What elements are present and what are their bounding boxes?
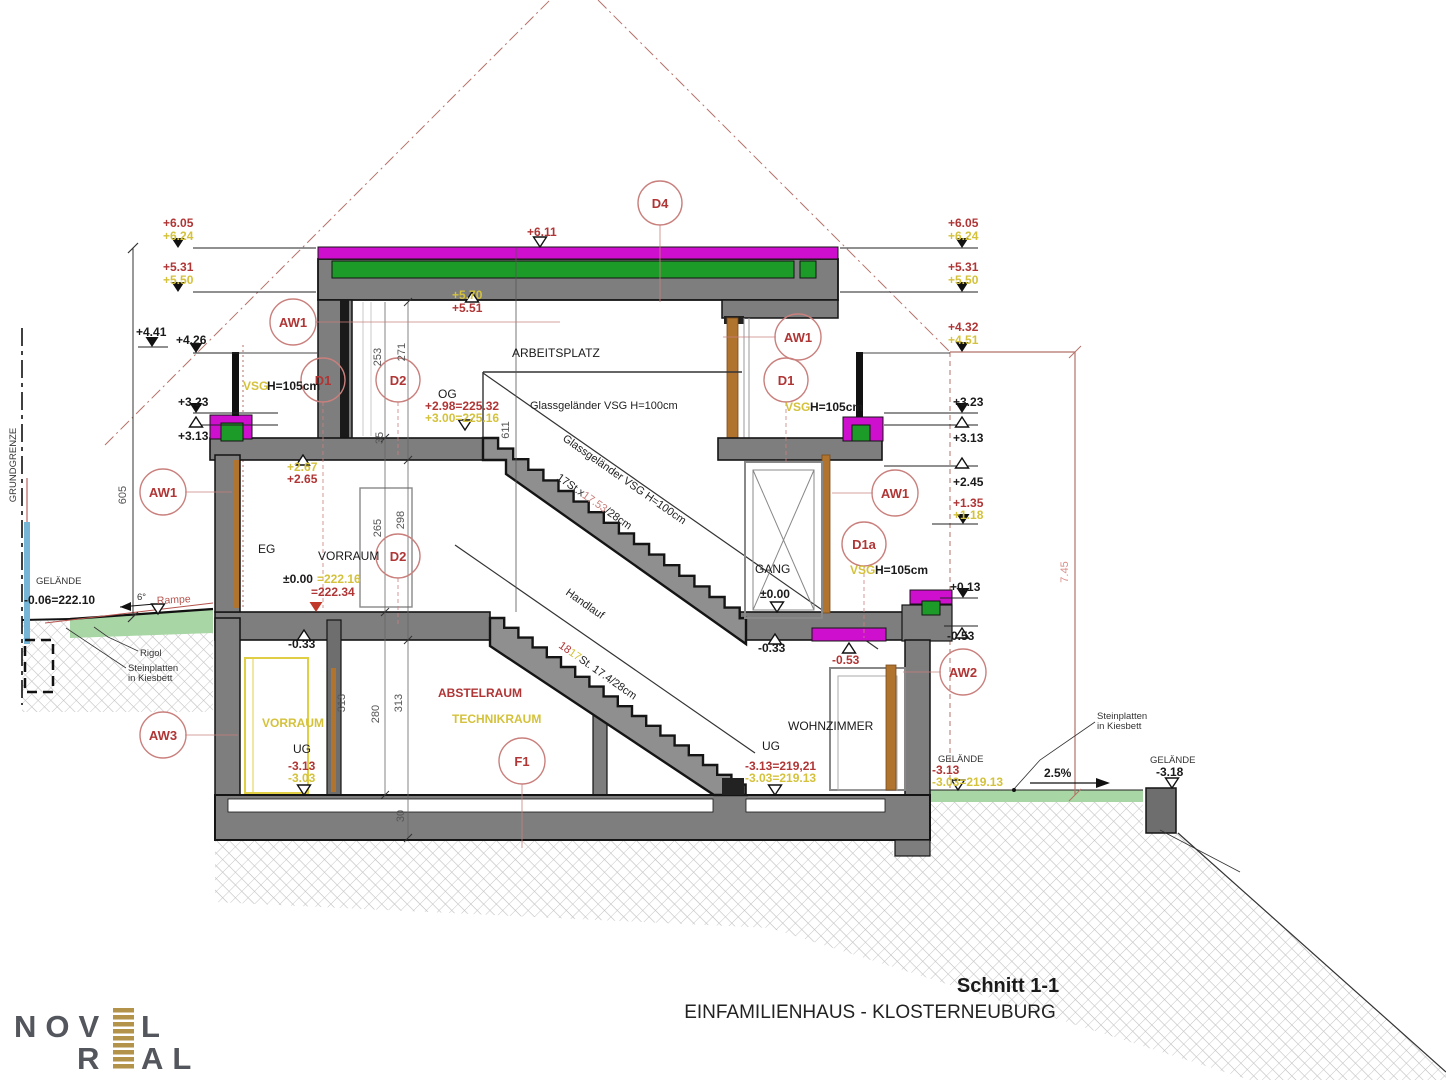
dim-298: 298 bbox=[395, 511, 407, 529]
roof-under-y: +5.70 bbox=[452, 288, 483, 302]
novel-real-logo: NOV L R AL bbox=[14, 1008, 200, 1076]
room-ug-right: UG bbox=[762, 739, 780, 753]
og-terrace-railing-post-left bbox=[232, 352, 239, 416]
vsg-right-h: H=105cm bbox=[810, 400, 863, 414]
level-right-245: +2.45 bbox=[953, 475, 984, 489]
sheet-title: Schnitt 1-1 bbox=[957, 975, 1059, 997]
level-right-013: +0.13 bbox=[950, 580, 981, 594]
dim-280: 280 bbox=[370, 705, 382, 723]
gang-m033: -0.33 bbox=[758, 641, 786, 655]
eg-zero: ±0.00 bbox=[283, 572, 313, 586]
level-right-313: +3.13 bbox=[953, 431, 984, 445]
glass-railing-og-label: Glassgeländer VSG H=100cm bbox=[530, 400, 678, 412]
eg-lintel-r: +2.65 bbox=[287, 472, 318, 486]
logo-line1-prefix: NOV bbox=[14, 1009, 108, 1044]
vsg-d1a: VSG bbox=[850, 563, 875, 577]
ramp-label: Rampe bbox=[157, 593, 192, 607]
tag-d2-top: D2 bbox=[390, 373, 407, 388]
dim-611: 611 bbox=[500, 421, 512, 439]
logo-e-bars-icon bbox=[113, 1008, 134, 1069]
slope-arrowhead bbox=[1096, 778, 1110, 788]
room-gang: GANG bbox=[755, 562, 790, 576]
ug-right-wall bbox=[905, 640, 930, 795]
dim-30: 30 bbox=[395, 810, 407, 822]
dim-253b: 253 bbox=[372, 348, 384, 366]
stein-right-2: in Kiesbett bbox=[1097, 721, 1142, 732]
level-left-550: +5.50 bbox=[163, 273, 194, 287]
room-wohnzimmer: WOHNZIMMER bbox=[788, 719, 874, 733]
roof-soffit bbox=[722, 300, 838, 318]
room-arbeitsplatz: ARBEITSPLATZ bbox=[512, 346, 600, 360]
room-abstellraum: ABSTELRAUM bbox=[438, 686, 522, 700]
tag-d1-right: D1 bbox=[778, 373, 795, 388]
tag-aw1-right-eg: AW1 bbox=[881, 486, 909, 501]
level-left-313: +3.13 bbox=[178, 429, 209, 443]
dim-35: 35 bbox=[374, 432, 386, 444]
tag-f1: F1 bbox=[514, 754, 529, 769]
vsg-right: VSG bbox=[785, 400, 810, 414]
tag-d4: D4 bbox=[652, 196, 669, 211]
level-right-624: +6.24 bbox=[948, 229, 979, 243]
level-left-441: +4.41 bbox=[136, 325, 167, 339]
level-right-550: +5.50 bbox=[948, 273, 979, 287]
room-vorraum-ug: VORRAUM bbox=[262, 716, 324, 730]
sheet-subtitle: EINFAMILIENHAUS - KLOSTERNEUBURG bbox=[684, 1002, 1056, 1023]
room-ug-left: UG bbox=[293, 742, 311, 756]
roof-sealing-magenta bbox=[318, 247, 838, 259]
ug-left-wall bbox=[215, 618, 240, 795]
ug-left-y: -3.03 bbox=[288, 771, 316, 785]
logo-line2-prefix: R bbox=[77, 1041, 99, 1076]
room-technikraum: TECHNIKRAUM bbox=[452, 712, 541, 726]
tag-d2-mid: D2 bbox=[390, 549, 407, 564]
dim-605: 605 bbox=[117, 486, 129, 504]
logo-line2-suffix: AL bbox=[141, 1041, 200, 1076]
dim-265: 265 bbox=[372, 519, 384, 537]
level-right-605: +6.05 bbox=[948, 216, 979, 230]
tag-d1a: D1a bbox=[852, 537, 877, 552]
eg-m033: -0.33 bbox=[288, 637, 316, 651]
tag-aw1-left-eg: AW1 bbox=[149, 485, 177, 500]
level-right-432: +4.32 bbox=[948, 320, 979, 334]
eg-floor-slab-left bbox=[215, 612, 490, 640]
level-right-118: +1.18 bbox=[953, 508, 984, 522]
room-vorraum-eg: VORRAUM bbox=[318, 549, 379, 563]
vsg-d1a-h: H=105cm bbox=[875, 563, 928, 577]
stein-left-2: in Kiesbett bbox=[128, 673, 173, 684]
vsg-left: VSG bbox=[243, 379, 268, 393]
architectural-section-sheet: AW1 AW1 AW1 AW1 AW2 AW3 D1 D1 D1a D2 D2 … bbox=[0, 0, 1446, 1080]
vsg-left-h: H=105cm bbox=[267, 379, 320, 393]
slope-label: 2.5% bbox=[1044, 766, 1072, 780]
roof-under-r: +5.51 bbox=[452, 301, 483, 315]
eg-wood-post bbox=[822, 455, 830, 613]
rigol-label: Rigol bbox=[140, 648, 162, 659]
og-wood-post bbox=[727, 318, 738, 438]
gang-zero: ±0.00 bbox=[760, 587, 790, 601]
tag-aw3: AW3 bbox=[149, 728, 177, 743]
dim-271: 271 bbox=[396, 343, 408, 361]
section-drawing: AW1 AW1 AW1 AW1 AW2 AW3 D1 D1 D1a D2 D2 … bbox=[0, 0, 1446, 1080]
level-right-531: +5.31 bbox=[948, 260, 979, 274]
gang-m053: -0.53 bbox=[832, 653, 860, 667]
level-right-m053: -0.53 bbox=[947, 629, 975, 643]
eg-zero-r: =222.34 bbox=[311, 585, 355, 599]
tag-aw2: AW2 bbox=[949, 665, 977, 680]
logo-line1-suffix: L bbox=[141, 1009, 160, 1044]
level-left-531: +5.31 bbox=[163, 260, 194, 274]
level-left-605: +6.05 bbox=[163, 216, 194, 230]
ramp-angle: 6° bbox=[137, 592, 146, 603]
eg-zero-y: =222.16 bbox=[317, 572, 361, 586]
ramp-arrowhead bbox=[120, 602, 131, 611]
level-left-426: +4.26 bbox=[176, 333, 207, 347]
level-right-451: +4.51 bbox=[948, 333, 979, 347]
eg-door-outline bbox=[360, 488, 412, 607]
level-left-624: +6.24 bbox=[163, 229, 194, 243]
tag-aw1-left-top: AW1 bbox=[279, 315, 307, 330]
og-floor-slab-left bbox=[210, 438, 490, 460]
gelaende-right-y: -3.03=219.13 bbox=[932, 775, 1003, 789]
groundwater-bar bbox=[24, 522, 30, 644]
dim-313a: 313 bbox=[336, 694, 348, 712]
ug-right-y: -3.03=219.13 bbox=[745, 771, 816, 785]
roof-assembly bbox=[318, 247, 838, 324]
dim-745: 7.45 bbox=[1059, 561, 1071, 582]
tag-aw1-right-top: AW1 bbox=[784, 330, 812, 345]
og-level-y: +3.00=225.16 bbox=[425, 411, 499, 425]
gelaende-far-value: -3.18 bbox=[1156, 765, 1184, 779]
room-eg: EG bbox=[258, 542, 275, 556]
exterior-step-block bbox=[1146, 788, 1176, 833]
dim-313b: 313 bbox=[393, 694, 405, 712]
gelaende-left-value: -0.06=222.10 bbox=[24, 593, 95, 607]
grundgrenze-label: GRUNDGRENZE bbox=[8, 428, 19, 502]
level-right-323: +3.23 bbox=[953, 395, 984, 409]
roof-insulation-green bbox=[332, 261, 794, 278]
level-left-323: +3.23 bbox=[178, 395, 209, 409]
handlauf-label: Handlauf bbox=[563, 587, 607, 623]
gelaende-left-label: GELÄNDE bbox=[36, 576, 81, 587]
roof-top-level: +6.11 bbox=[527, 225, 557, 239]
right-level-texts: +6.05 +6.24 +5.31 +5.50 +4.32 +4.51 +3.2… bbox=[947, 216, 1071, 643]
